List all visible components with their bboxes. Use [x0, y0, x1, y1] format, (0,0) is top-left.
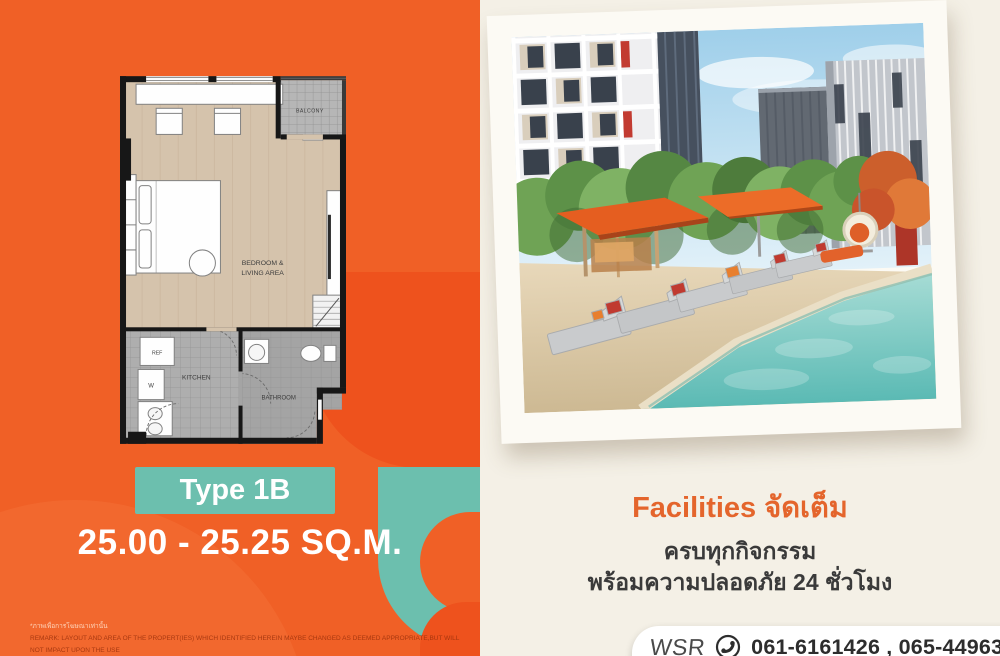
- facilities-photo-frame: [487, 0, 962, 444]
- facilities-subline-1: ครบทุกกิจกรรม: [480, 536, 1000, 567]
- area-text: 25.00 - 25.25 SQ.M.: [0, 523, 480, 563]
- label-kitchen: KITCHEN: [182, 375, 211, 382]
- label-washer: W: [148, 384, 154, 390]
- label-bedroom-2: LIVING AREA: [241, 270, 284, 277]
- floor-plan: BALCONY BEDROOM & LIVING AREA KITCHEN BA…: [120, 76, 346, 452]
- facilities-subline-2: พร้อมความปลอดภัย 24 ชั่วโมง: [480, 567, 1000, 598]
- wsr-logo-text: WSR: [649, 634, 707, 656]
- label-bedroom-1: BEDROOM &: [242, 260, 284, 267]
- facilities-caption: Facilities จัดเต็ม ครบทุกกิจกรรม พร้อมคว…: [480, 484, 1000, 598]
- label-fridge: REF: [152, 350, 162, 356]
- disclaimer-thai: *ภาพเพื่อการโฆษณาเท่านั้น: [30, 621, 470, 633]
- pool-photo: [511, 23, 936, 413]
- facilities-headline: Facilities จัดเต็ม: [480, 484, 1000, 530]
- phone-icon: [715, 634, 741, 656]
- type-badge: Type 1B: [135, 467, 335, 514]
- disclaimer: *ภาพเพื่อการโฆษณาเท่านั้น REMARK: LAYOUT…: [30, 621, 470, 656]
- disclaimer-english: REMARK: LAYOUT AND AREA OF THE PROPERT(I…: [30, 633, 470, 656]
- facilities-panel: Facilities จัดเต็ม ครบทุกกิจกรรม พร้อมคว…: [480, 0, 1000, 656]
- label-bathroom: BATHROOM: [262, 396, 296, 402]
- wsr-logo: WSR: [650, 634, 705, 656]
- condo-flyer: BALCONY BEDROOM & LIVING AREA KITCHEN BA…: [0, 0, 1000, 656]
- phone-numbers: 061-6161426 , 065-4496399: [751, 635, 1000, 656]
- floor-plan-panel: BALCONY BEDROOM & LIVING AREA KITCHEN BA…: [0, 0, 480, 656]
- contact-bar: WSR 061-6161426 , 065-4496399: [632, 626, 1000, 656]
- label-balcony: BALCONY: [296, 108, 324, 114]
